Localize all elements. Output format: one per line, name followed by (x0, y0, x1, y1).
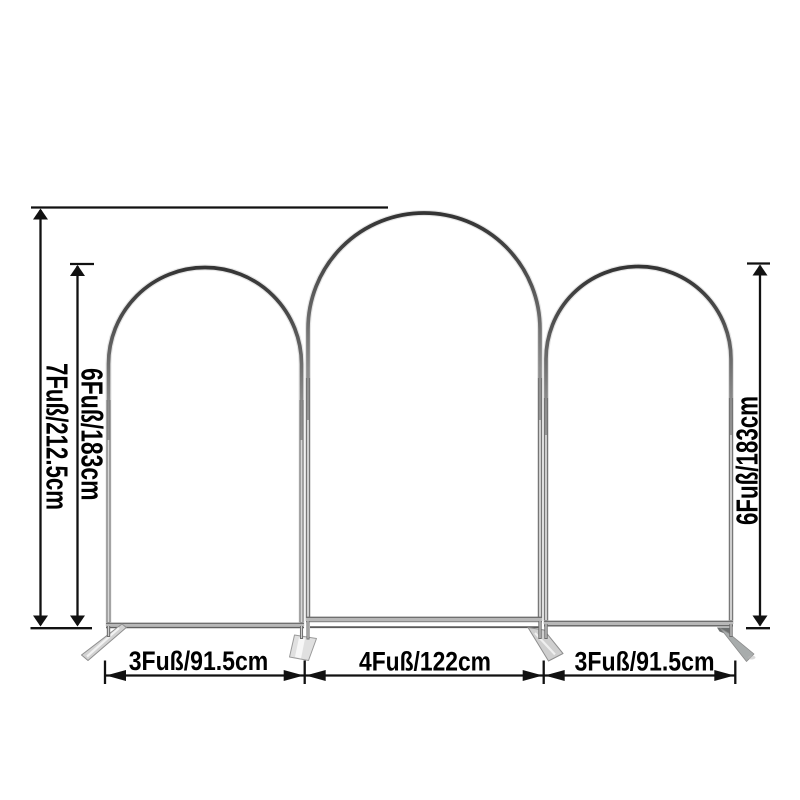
svg-text:7Fuß/212.5cm: 7Fuß/212.5cm (40, 363, 74, 510)
svg-text:3Fuß/91.5cm: 3Fuß/91.5cm (575, 647, 715, 677)
svg-text:4Fuß/122cm: 4Fuß/122cm (359, 647, 491, 677)
svg-text:6Fuß/183cm: 6Fuß/183cm (75, 368, 109, 501)
svg-text:6Fuß/183cm: 6Fuß/183cm (731, 396, 765, 525)
svg-text:3Fuß/91.5cm: 3Fuß/91.5cm (129, 646, 269, 676)
